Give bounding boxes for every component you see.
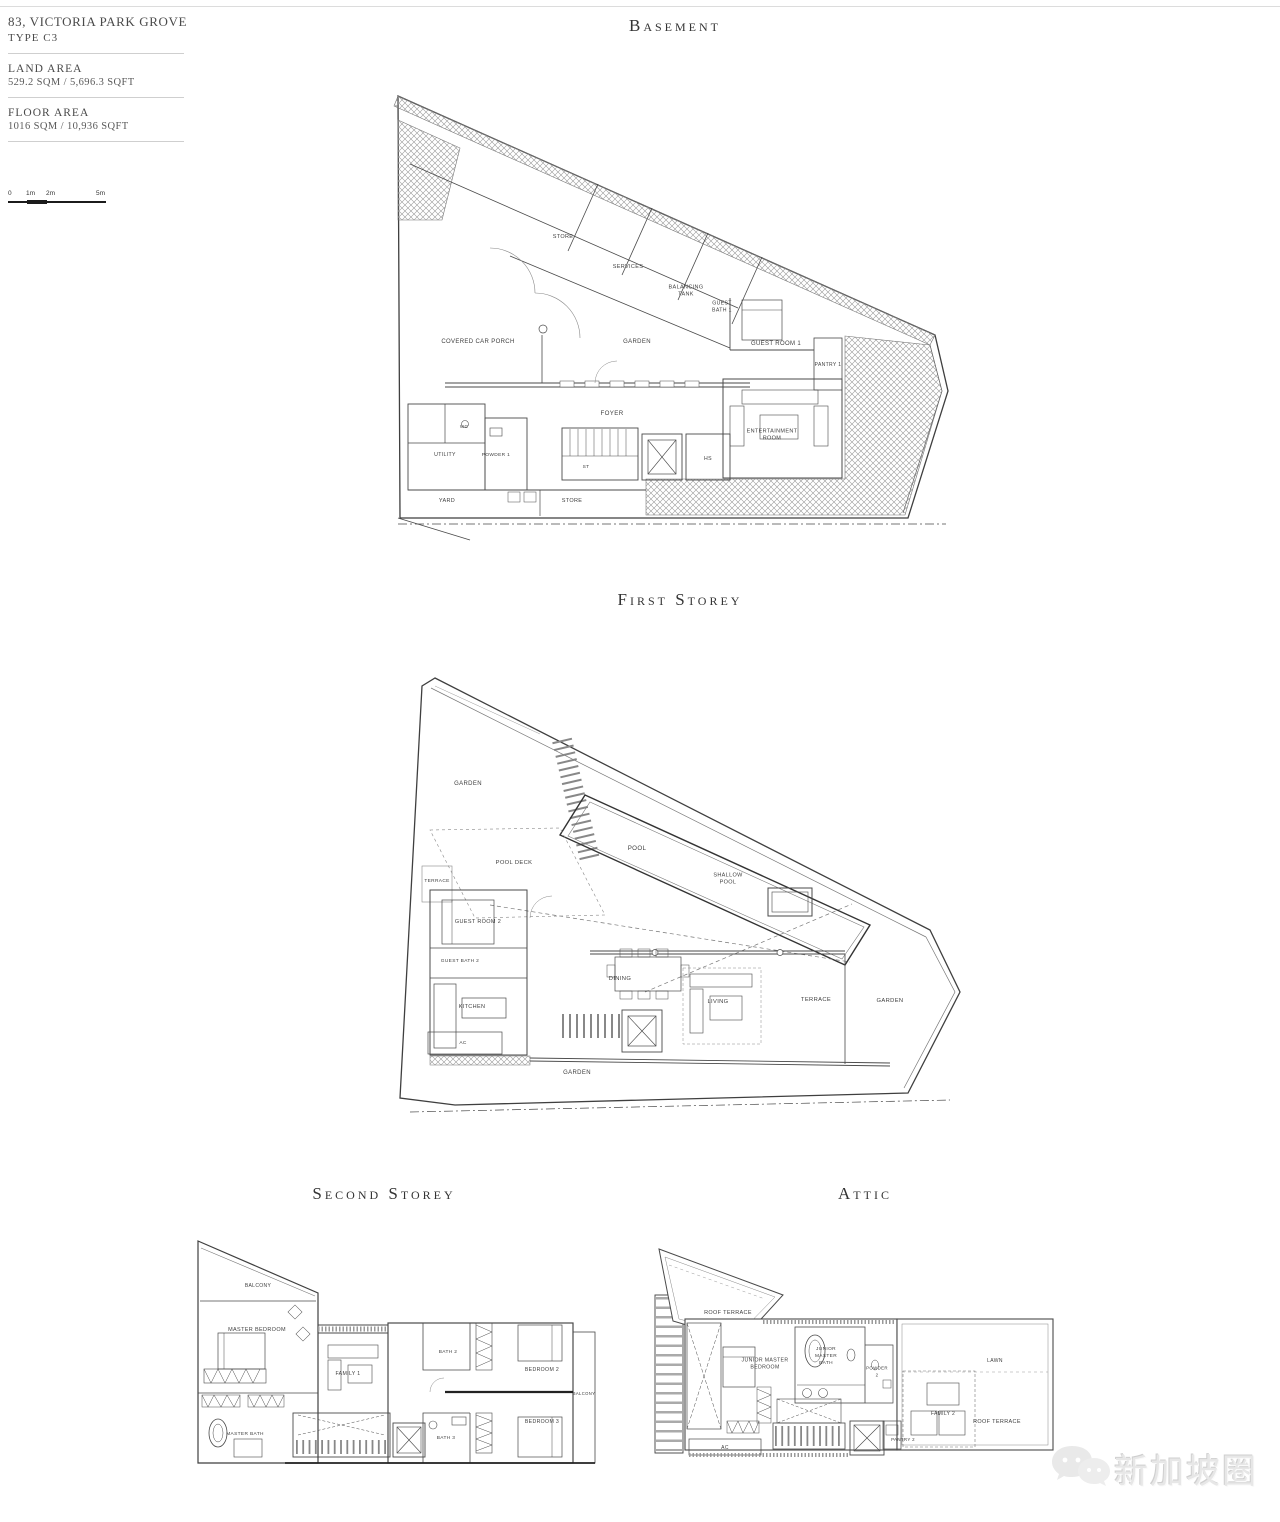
- scale-line: [8, 201, 106, 203]
- divider: [8, 97, 184, 98]
- scale-tick: 1m: [26, 190, 35, 197]
- scale-tick: 0: [8, 190, 12, 197]
- floor-area-label: FLOOR AREA: [8, 107, 188, 119]
- room-label: GUEST BATH 2: [441, 958, 479, 964]
- room-label: FAMILY 1: [335, 1371, 360, 1377]
- first-storey-floor-plan: GARDENPOOL DECKPOOLSHALLOWPOOLTERRACEGUE…: [390, 660, 970, 1130]
- room-label: GARDEN: [454, 781, 482, 787]
- watermark-text: 新加坡圈: [1114, 1444, 1258, 1493]
- room-label: MASTER BATH: [226, 1431, 264, 1437]
- room-label: WC: [460, 424, 469, 429]
- attic-plan-drawing: ROOF TERRACEJUNIOR MASTERBEDROOMJUNIORMA…: [645, 1235, 1065, 1480]
- room-label: COVERED CAR PORCH: [441, 339, 514, 345]
- room-label: BALCONY: [245, 1283, 272, 1289]
- room-label: HS: [704, 456, 712, 462]
- second-storey-title: Second Storey: [284, 1184, 484, 1204]
- elevator-symbol: [622, 1010, 662, 1052]
- room-label: AC: [459, 1040, 467, 1046]
- room-label: POOL: [628, 845, 647, 852]
- attic-title: Attic: [765, 1184, 965, 1204]
- scale-bar: 0 1m 2m 5m: [8, 190, 118, 210]
- room-label: AC: [721, 1445, 729, 1451]
- basement-plan-drawing: STORESERVICESBALANCINGTANKGUESTBATH 1GAR…: [390, 88, 960, 548]
- room-label: ROOF TERRACE: [704, 1310, 752, 1316]
- basement-floor-plan: STORESERVICESBALANCINGTANKGUESTBATH 1GAR…: [390, 88, 960, 548]
- room-label: FOYER: [600, 410, 623, 417]
- first-storey-plan-drawing: GARDENPOOL DECKPOOLSHALLOWPOOLTERRACEGUE…: [390, 660, 970, 1130]
- room-label: BATH 3: [437, 1435, 456, 1441]
- room-label: BATH 2: [439, 1349, 458, 1355]
- room-label: GUEST ROOM 1: [751, 341, 801, 347]
- watermark: 新加坡圈: [1050, 1440, 1258, 1496]
- room-label: STORE: [562, 498, 583, 504]
- unit-type: TYPE C3: [8, 32, 188, 44]
- room-label: ST: [583, 464, 590, 470]
- wechat-logo-icon: [1050, 1440, 1110, 1496]
- room-label: LAWN: [987, 1358, 1003, 1364]
- land-area-value: 529.2 SQM / 5,696.3 SQFT: [8, 77, 188, 88]
- room-label: FAMILY 2: [931, 1411, 955, 1417]
- divider: [8, 53, 184, 54]
- room-label: GARDEN: [623, 339, 651, 345]
- room-label: POWDER 1: [482, 452, 510, 458]
- room-label: BEDROOM 3: [525, 1419, 559, 1425]
- room-label: KITCHEN: [459, 1004, 486, 1010]
- room-label: TERRACE: [424, 878, 449, 884]
- floor-area-value: 1016 SQM / 10,936 SQFT: [8, 121, 188, 132]
- room-label: TERRACE: [801, 997, 831, 1003]
- attic-floor-plan: ROOF TERRACEJUNIOR MASTERBEDROOMJUNIORMA…: [645, 1235, 1065, 1480]
- room-label: PANTRY 2: [891, 1437, 915, 1442]
- floor-plan-page: 83, VICTORIA PARK GROVE TYPE C3 LAND ARE…: [0, 0, 1280, 1522]
- room-label: DINING: [609, 976, 632, 982]
- room-label: PANTRY 1: [815, 362, 842, 368]
- project-title: 83, VICTORIA PARK GROVE: [8, 14, 188, 30]
- room-label: POOL DECK: [496, 860, 533, 866]
- room-label: YARD: [439, 498, 455, 504]
- room-label: GUESTBATH 1: [712, 301, 732, 314]
- room-label: STORE: [553, 234, 574, 240]
- scale-tick: 5m: [96, 190, 105, 197]
- land-area-label: LAND AREA: [8, 63, 188, 75]
- scale-tick: 2m: [46, 190, 55, 197]
- scale-segment: [27, 200, 47, 204]
- basement-title: Basement: [540, 16, 810, 36]
- room-label: BALCONY: [573, 1391, 595, 1396]
- room-label: MASTER BEDROOM: [228, 1327, 286, 1333]
- room-label: GARDEN: [877, 998, 904, 1004]
- room-label: SERVICES: [613, 264, 644, 270]
- divider: [8, 141, 184, 142]
- room-label: GARDEN: [563, 1070, 591, 1076]
- second-storey-plan-drawing: BALCONYMASTER BEDROOMFAMILY 1BATH 2BEDRO…: [190, 1235, 610, 1480]
- info-panel: 83, VICTORIA PARK GROVE TYPE C3 LAND ARE…: [8, 14, 188, 151]
- room-label: LIVING: [707, 999, 728, 1005]
- room-label: BEDROOM 2: [525, 1367, 559, 1373]
- top-divider: [0, 6, 1280, 7]
- room-label: UTILITY: [434, 452, 456, 458]
- first-storey-title: First Storey: [540, 590, 820, 610]
- room-label: ROOF TERRACE: [973, 1419, 1021, 1425]
- room-label: GUEST ROOM 2: [455, 919, 501, 925]
- second-storey-floor-plan: BALCONYMASTER BEDROOMFAMILY 1BATH 2BEDRO…: [190, 1235, 610, 1480]
